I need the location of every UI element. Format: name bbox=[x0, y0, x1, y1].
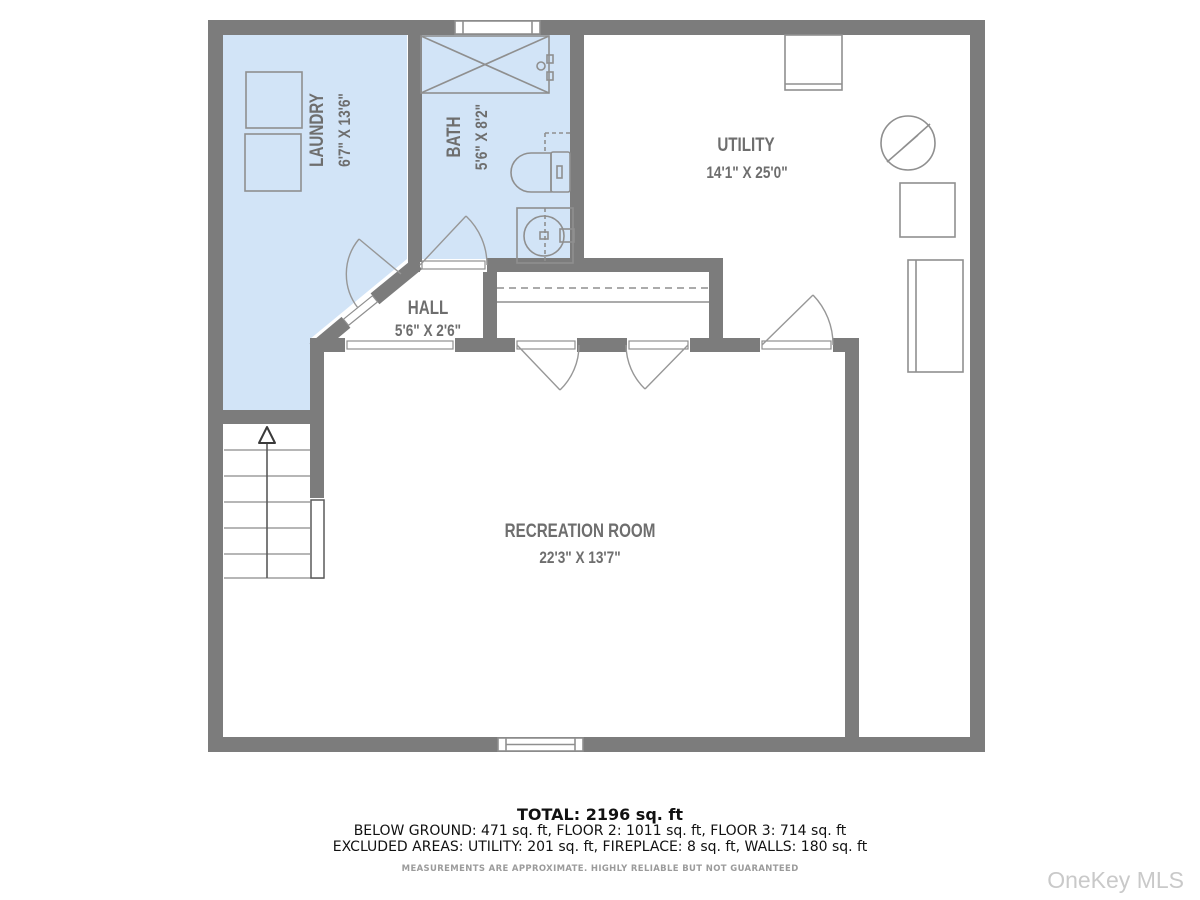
closet-interior bbox=[497, 288, 709, 302]
wall-segment bbox=[845, 338, 859, 737]
utility-equipment-tall bbox=[908, 260, 963, 372]
wall-segment bbox=[487, 258, 723, 272]
utility-cabinet-top bbox=[785, 35, 842, 90]
excluded-areas-text: EXCLUDED AREAS: UTILITY: 201 sq. ft, FIR… bbox=[0, 839, 1200, 855]
wall-segment bbox=[690, 338, 760, 352]
floor-areas-text: BELOW GROUND: 471 sq. ft, FLOOR 2: 1011 … bbox=[0, 823, 1200, 839]
closet-left-door-arc bbox=[560, 345, 579, 390]
laundry-dims: 6'7" X 13'6" bbox=[336, 93, 355, 167]
stair-treads bbox=[224, 450, 324, 578]
opening-bath-door bbox=[422, 261, 485, 269]
wall-segment bbox=[208, 20, 223, 752]
wall-segment bbox=[483, 272, 497, 348]
wall-segment bbox=[408, 20, 422, 262]
room-fills bbox=[223, 35, 570, 410]
closet-right-door-arc bbox=[626, 345, 645, 389]
closet-right-door-leaf bbox=[645, 345, 688, 389]
total-area-text: TOTAL: 2196 sq. ft bbox=[0, 806, 1200, 823]
wall-segment bbox=[208, 737, 985, 752]
window-bottom bbox=[498, 738, 583, 751]
wall-segment bbox=[310, 345, 324, 498]
utility-door-leaf bbox=[762, 295, 813, 345]
hall-dims: 5'6" X 2'6" bbox=[395, 322, 461, 341]
utility-door-arc bbox=[813, 295, 833, 345]
stair-up-arrow-icon bbox=[259, 427, 275, 443]
closet-left-door-leaf bbox=[517, 345, 560, 390]
bath-label: BATH bbox=[442, 116, 464, 157]
recreation-dims: 22'3" X 13'7" bbox=[539, 549, 620, 568]
recreation-label: RECREATION ROOM bbox=[505, 519, 656, 541]
disclaimer-text: MEASUREMENTS ARE APPROXIMATE. HIGHLY REL… bbox=[402, 864, 799, 874]
stairs bbox=[224, 427, 324, 578]
hall-label: HALL bbox=[408, 296, 448, 318]
stair-handrail bbox=[311, 500, 324, 578]
opening-closet-left bbox=[517, 341, 575, 349]
wall-segment bbox=[208, 410, 324, 424]
bath-dims: 5'6" X 8'2" bbox=[473, 104, 492, 170]
window-top bbox=[455, 21, 540, 34]
opening-utility-door bbox=[762, 341, 831, 349]
wall-segment bbox=[970, 20, 985, 752]
wall-segment bbox=[709, 258, 723, 352]
utility-dims: 14'1" X 25'0" bbox=[706, 164, 787, 183]
floor-plan: LAUNDRY 6'7" X 13'6" BATH 5'6" X 8'2" UT… bbox=[0, 0, 1200, 900]
opening-closet-right bbox=[629, 341, 688, 349]
wall-segment bbox=[577, 338, 627, 352]
utility-label: UTILITY bbox=[717, 133, 775, 155]
utility-equipment-square bbox=[900, 183, 955, 237]
area-summary: TOTAL: 2196 sq. ft BELOW GROUND: 471 sq.… bbox=[0, 806, 1200, 875]
water-heater-icon bbox=[881, 116, 935, 170]
onekey-mls-watermark: OneKey MLS bbox=[1047, 867, 1184, 894]
laundry-label: LAUNDRY bbox=[305, 93, 327, 167]
wall-segment bbox=[208, 20, 985, 35]
wall-segment bbox=[455, 338, 515, 352]
wall-segment bbox=[570, 20, 584, 272]
floor-plan-page: LAUNDRY 6'7" X 13'6" BATH 5'6" X 8'2" UT… bbox=[0, 0, 1200, 900]
utility-fixtures bbox=[785, 35, 963, 372]
opening-hall-recreation bbox=[347, 341, 453, 349]
